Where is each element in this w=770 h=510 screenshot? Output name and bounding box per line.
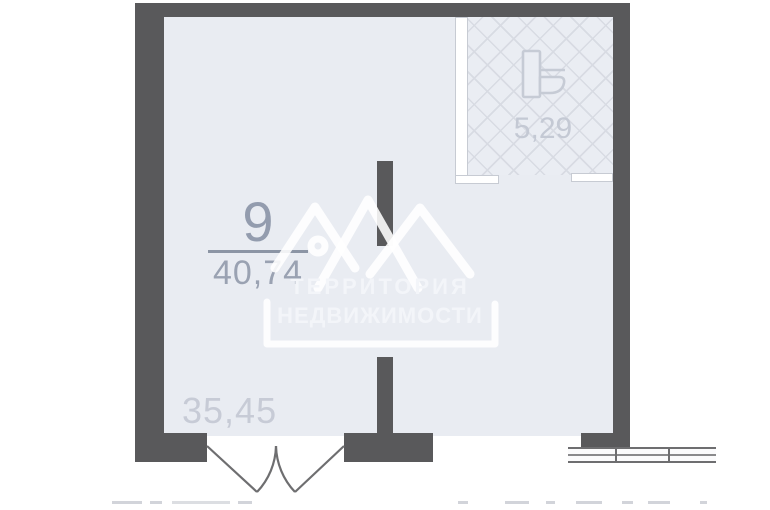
- unit-total-area: 40,74: [208, 256, 308, 290]
- unit-number: 9: [208, 200, 308, 245]
- floor-plan-image: { "floor_plan": { "unit": { "number": "9…: [0, 0, 770, 510]
- toilet-icon: [519, 49, 569, 101]
- door-arc-left: [257, 446, 276, 492]
- door-leaf-right: [295, 446, 344, 492]
- bathroom-area-label: 5,29: [503, 112, 583, 146]
- main-room-area-label: 35,45: [182, 390, 277, 432]
- door-arc-right: [276, 446, 295, 492]
- unit-label: 9 40,74: [208, 200, 308, 290]
- door-leaf-left: [207, 446, 257, 492]
- entrance-door-swings: [0, 0, 770, 510]
